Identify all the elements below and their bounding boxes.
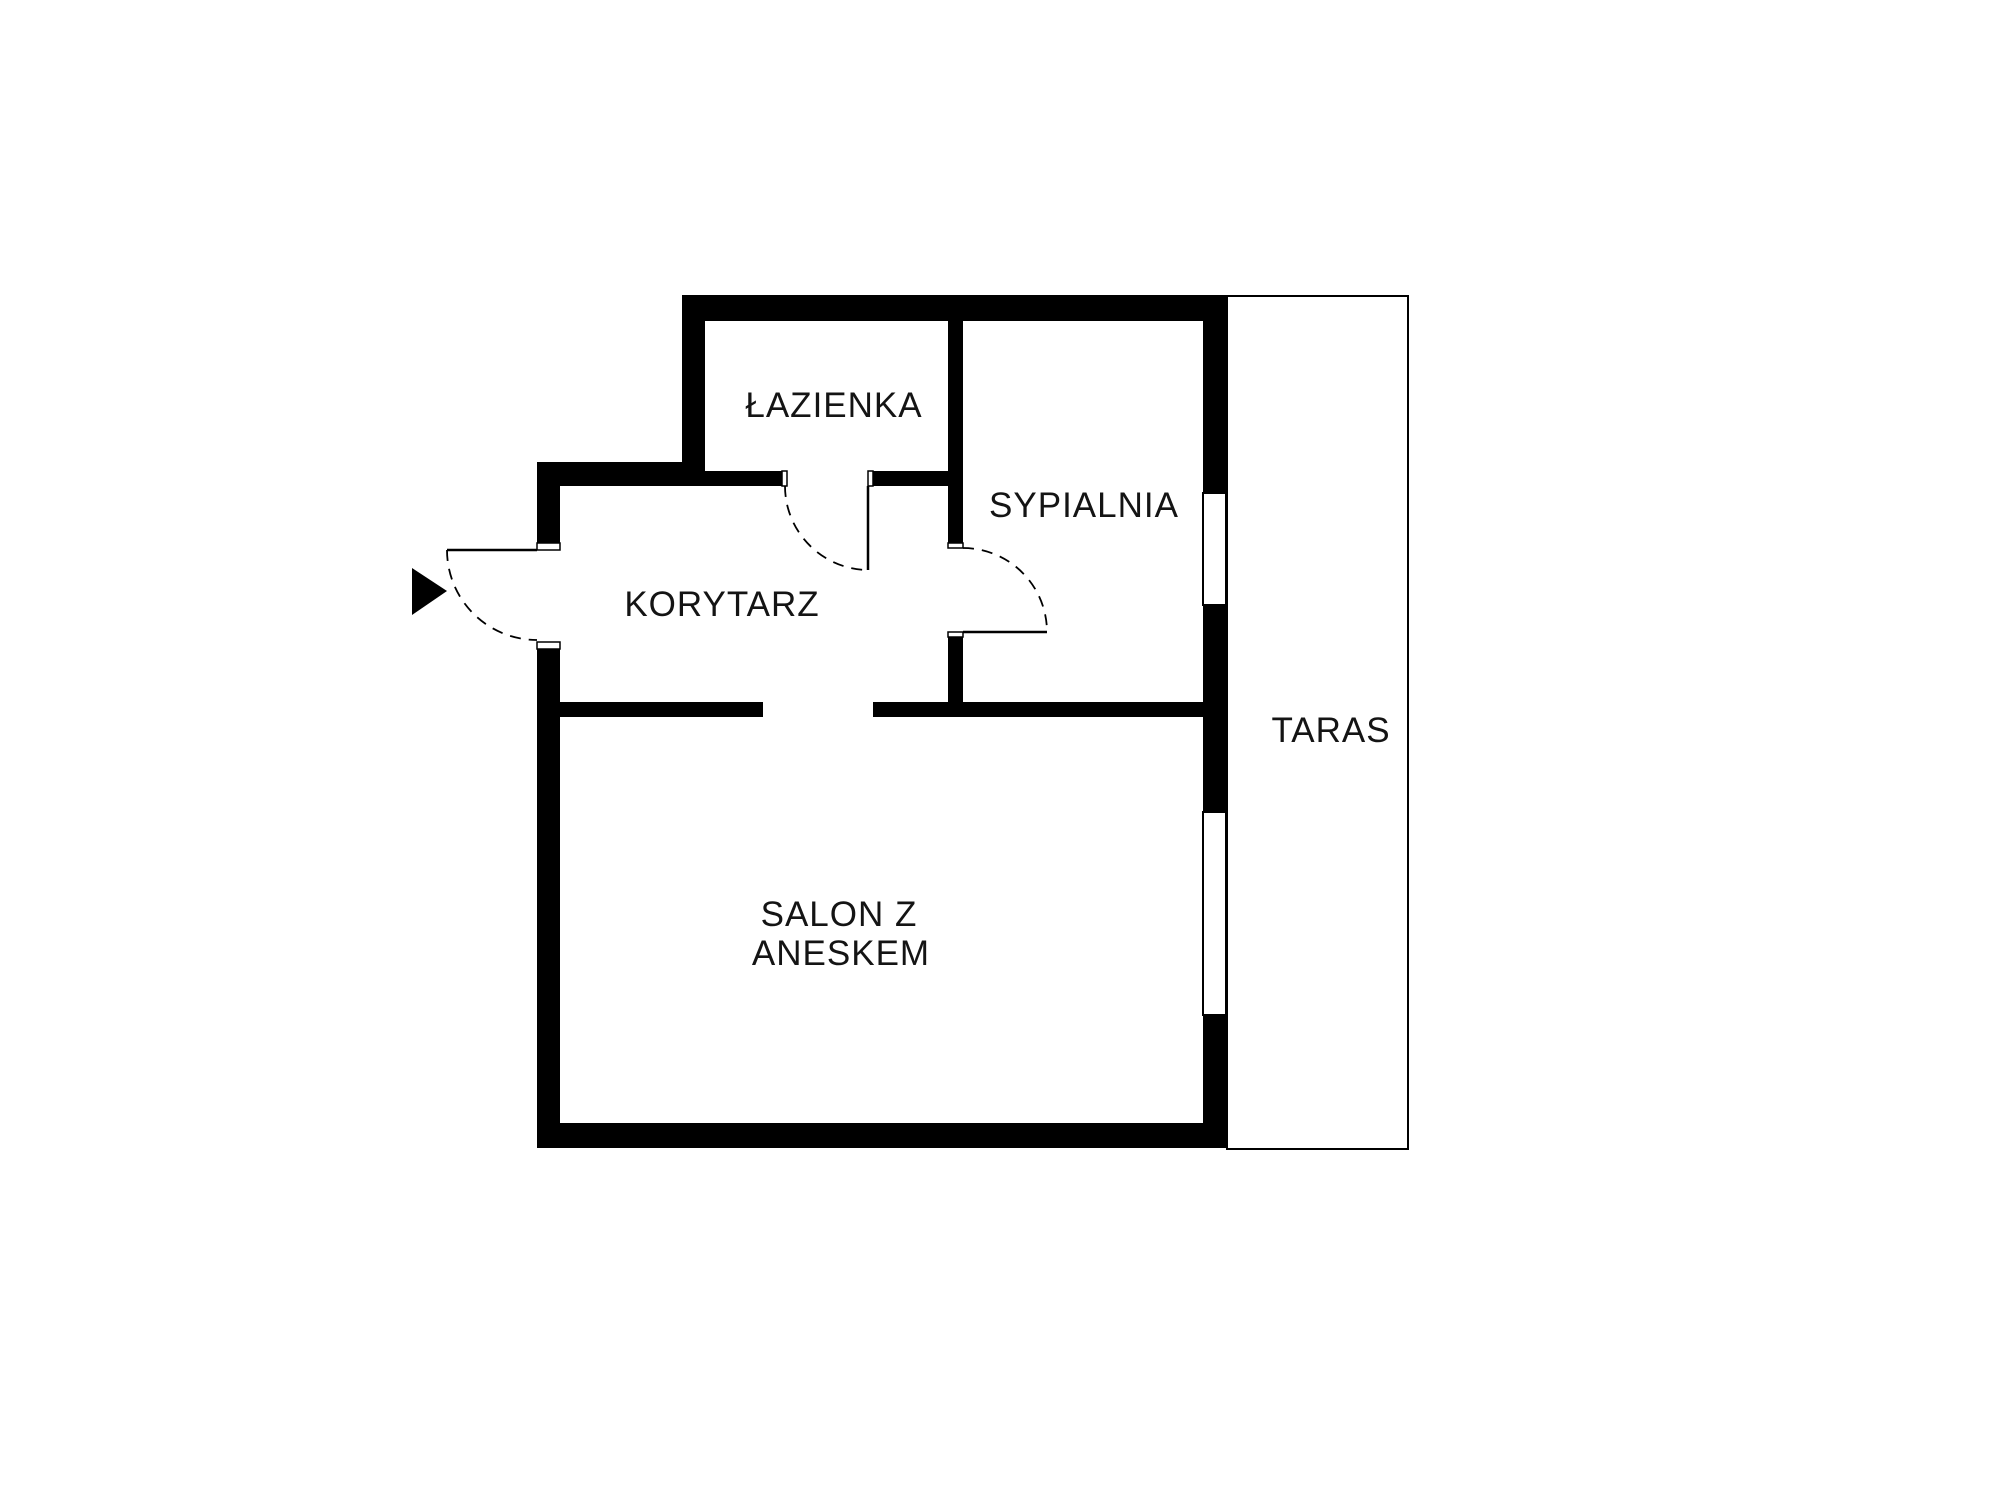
wall-bathroom-bottom-right	[873, 471, 948, 486]
livingroom-window	[1203, 812, 1226, 1015]
wall-bathroom-bottom-left	[705, 471, 782, 486]
wall-bedroom-left-upper	[948, 321, 963, 543]
wall-livingroom-top-left	[560, 702, 763, 717]
wall-left-upper	[537, 462, 560, 543]
wall-right-middle	[1203, 605, 1226, 812]
floorplan-page: ŁAZIENKA SYPIALNIA KORYTARZ SALON Z ANES…	[0, 0, 2000, 1500]
living-room-label-line1: SALON Z	[761, 895, 918, 934]
entry-door-jamb-top	[537, 543, 560, 550]
bathroom-door-swing-arc	[785, 486, 868, 570]
wall-left-lower	[537, 649, 560, 1123]
entry-door-swing-arc	[447, 550, 537, 640]
bedroom-label: SYPIALNIA	[989, 486, 1179, 525]
wall-top	[682, 295, 1226, 321]
bedroom-door-jamb-bottom	[948, 632, 963, 637]
entrance-arrow-icon	[412, 568, 447, 615]
wall-right-lower	[1203, 1015, 1226, 1148]
wall-bedroom-left-lower	[948, 637, 963, 702]
entry-door-jamb-bottom	[537, 642, 560, 649]
bathroom-door-jamb-right	[868, 471, 873, 486]
corridor-label: KORYTARZ	[624, 585, 819, 624]
wall-livingroom-top-right	[873, 702, 1204, 717]
bedroom-door-swing-arc	[963, 548, 1047, 632]
floorplan-canvas: ŁAZIENKA SYPIALNIA KORYTARZ SALON Z ANES…	[0, 0, 2000, 1500]
wall-right-upper	[1203, 321, 1226, 493]
bedroom-door-jamb-top	[948, 543, 963, 548]
bathroom-label: ŁAZIENKA	[745, 386, 922, 425]
wall-bathroom-left	[682, 295, 705, 486]
living-room-label-line2: ANESKEM	[752, 934, 930, 973]
terrace-label: TARAS	[1271, 711, 1390, 750]
wall-bottom	[537, 1123, 1226, 1148]
bathroom-door-jamb-left	[782, 471, 787, 486]
bedroom-window	[1203, 493, 1226, 605]
